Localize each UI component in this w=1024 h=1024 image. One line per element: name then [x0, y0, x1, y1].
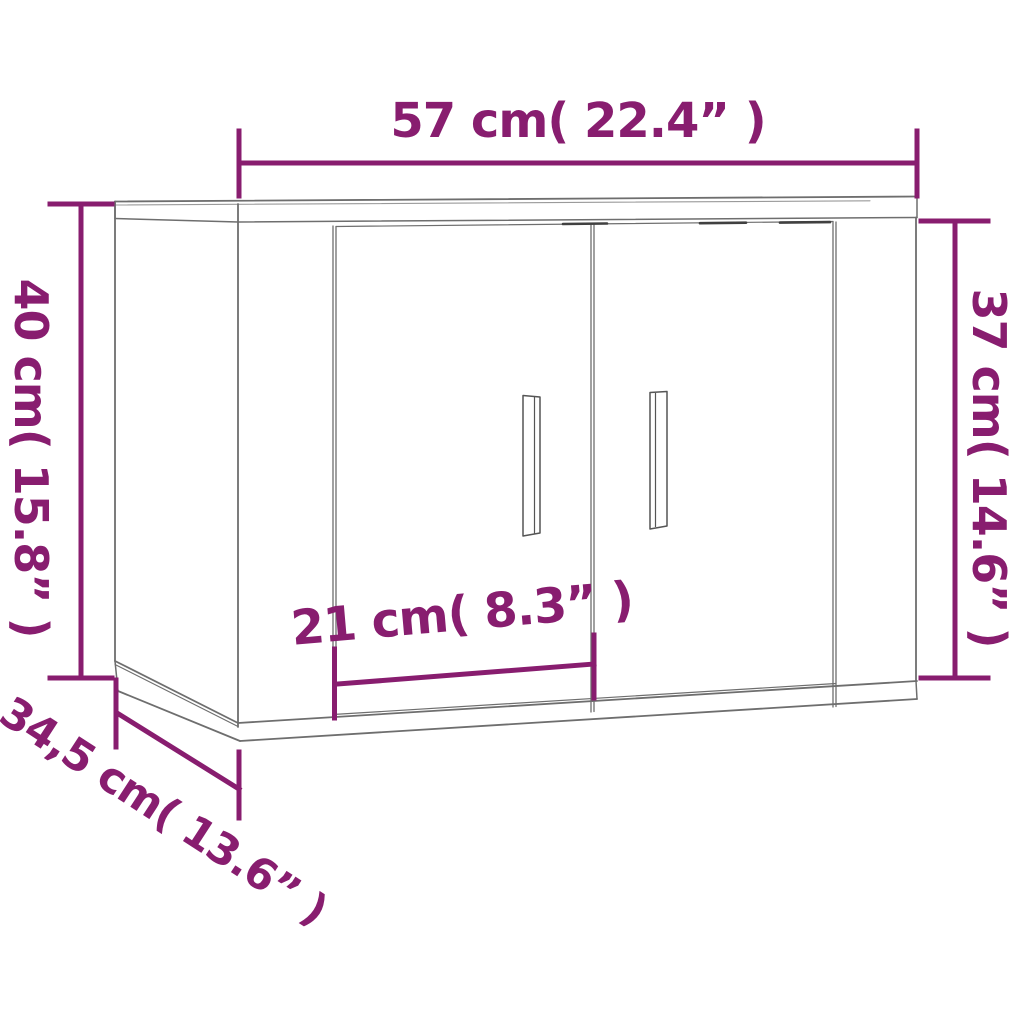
cabinet-line-drawing [0, 0, 1024, 1024]
side-panel-bottom-edge [115, 661, 238, 723]
hinge-mark-center [563, 224, 607, 225]
hinge-mark-right-1 [700, 223, 746, 224]
height-dimension-label: 40 cm( 15.8” ) [8, 278, 54, 637]
height-dimension [50, 204, 112, 678]
cabinet-outline [115, 197, 917, 742]
dimension-diagram: 57 cm( 22.4” ) 40 cm( 15.8” ) 37 cm( 14.… [0, 0, 1024, 1024]
left-door-handle [523, 396, 540, 537]
bottom-panel-top-edge [238, 681, 917, 723]
width-dimension-label: 57 cm( 22.4” ) [390, 97, 765, 145]
right-door-handle [650, 392, 667, 530]
door-bottom-edge [333, 684, 836, 715]
door-dim-line [338, 664, 594, 684]
side-height-dimension-label: 37 cm( 14.6” ) [966, 288, 1012, 647]
side-base-bottom-edge [118, 691, 240, 741]
hinge-mark-right-2 [780, 222, 830, 223]
bottom-panel-bottom-edge [240, 699, 917, 741]
bottom-panel-right-cap [916, 681, 917, 699]
side-panel-bottom-edge-2 [115, 665, 238, 727]
dimension-lines [50, 131, 988, 818]
door-handles [523, 392, 667, 537]
